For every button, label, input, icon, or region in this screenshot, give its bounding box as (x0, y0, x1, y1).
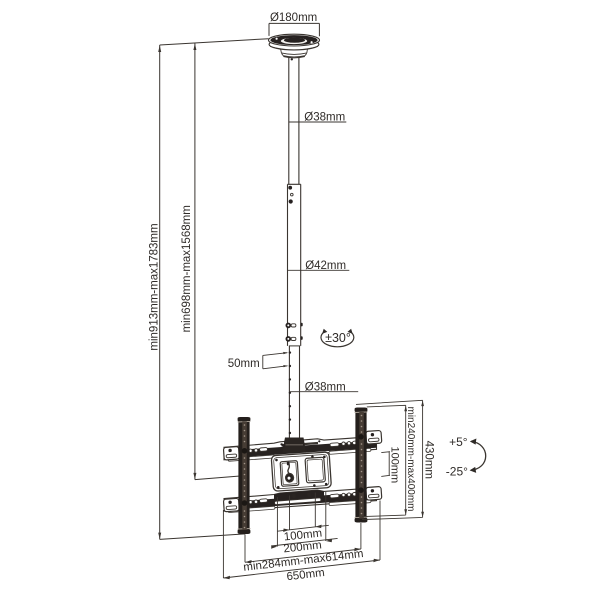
svg-text:min913mm-max1783mm: min913mm-max1783mm (148, 223, 160, 350)
svg-text:-25°: -25° (446, 464, 468, 478)
svg-text:430mm: 430mm (423, 441, 435, 479)
svg-text:min240mm-max400mm: min240mm-max400mm (405, 406, 416, 511)
svg-text:±30°: ±30° (325, 331, 351, 345)
svg-text:Ø180mm: Ø180mm (270, 12, 317, 24)
svg-text:min698mm-max1568mm: min698mm-max1568mm (181, 205, 193, 332)
svg-text:50mm: 50mm (228, 358, 260, 370)
svg-text:+5°: +5° (449, 435, 468, 449)
svg-text:100mm: 100mm (389, 446, 401, 483)
